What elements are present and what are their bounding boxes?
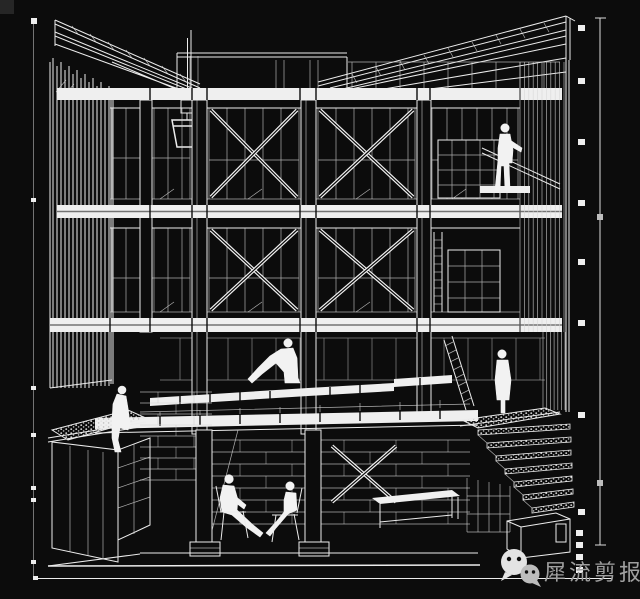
corner-artifact [0, 0, 14, 14]
roof-eave-beam [57, 88, 562, 100]
watermark-text: 犀流剪报 [544, 560, 640, 585]
third-floor-band [57, 205, 562, 218]
shelving-second-floor [448, 250, 500, 312]
drawing-canvas: 犀流剪报 [0, 0, 640, 599]
second-floor-band [50, 318, 562, 332]
architectural-section-drawing: 犀流剪报 [0, 0, 640, 599]
